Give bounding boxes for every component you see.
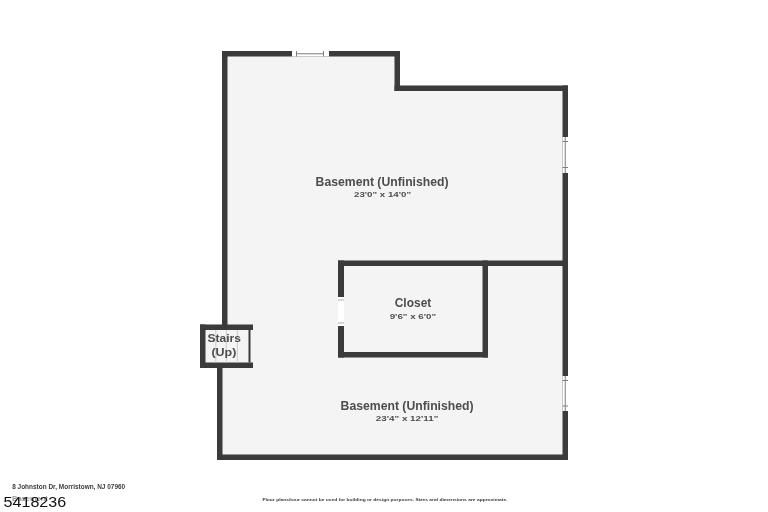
svg-text:23'0" x 14'0": 23'0" x 14'0" <box>354 190 411 199</box>
svg-text:Floor plans/tour cannot be use: Floor plans/tour cannot be used for buil… <box>263 497 508 502</box>
svg-text:23'4" x 12'11": 23'4" x 12'11" <box>376 414 439 423</box>
svg-text:Closet: Closet <box>395 295 432 310</box>
svg-text:Stairs: Stairs <box>207 332 241 344</box>
svg-text:8 Johnston Dr, Morristown, NJ: 8 Johnston Dr, Morristown, NJ 07960 <box>12 483 125 491</box>
svg-text:(Up): (Up) <box>211 346 236 358</box>
svg-text:5418236: 5418236 <box>4 494 67 510</box>
svg-text:Basement (Unfinished): Basement (Unfinished) <box>341 398 474 413</box>
svg-text:Basement (Unfinished): Basement (Unfinished) <box>316 174 449 189</box>
svg-text:9'6" x 6'0": 9'6" x 6'0" <box>390 312 437 321</box>
